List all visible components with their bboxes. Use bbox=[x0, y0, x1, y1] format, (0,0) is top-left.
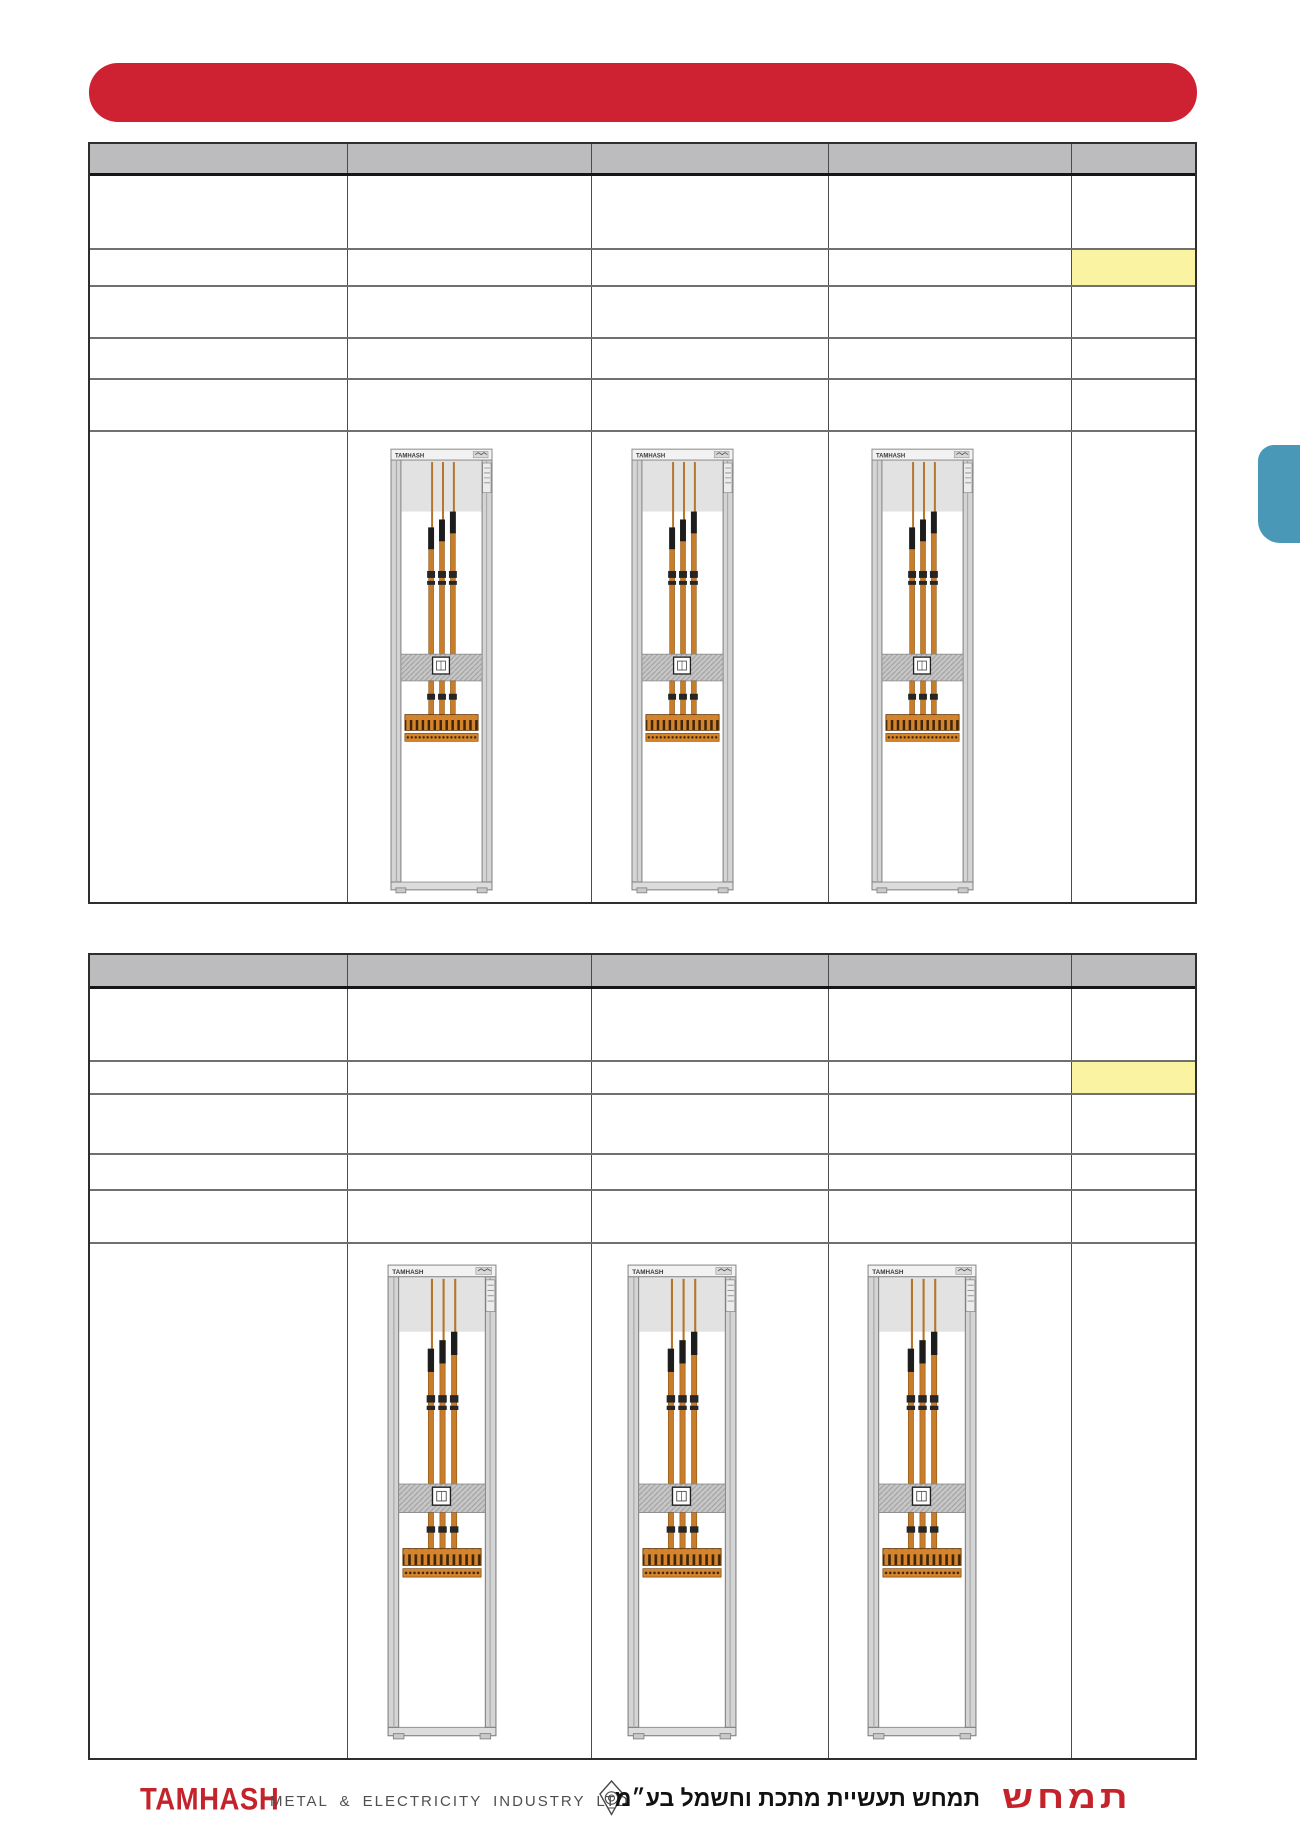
table-row bbox=[90, 176, 1195, 250]
table-cell bbox=[90, 1244, 348, 1758]
table-cell bbox=[1072, 1191, 1195, 1242]
table-cell bbox=[1072, 380, 1195, 430]
page-edge-tab bbox=[1258, 445, 1300, 543]
cabinet-image-cell bbox=[829, 1244, 1072, 1758]
table-cell bbox=[1072, 1155, 1195, 1189]
table-cell bbox=[90, 1062, 348, 1093]
table-cell bbox=[592, 1062, 829, 1093]
table-row bbox=[90, 287, 1195, 339]
table-cell bbox=[90, 989, 348, 1060]
table-cell bbox=[592, 287, 829, 337]
table-cell bbox=[348, 380, 592, 430]
table-cell bbox=[592, 989, 829, 1060]
table-cell bbox=[348, 989, 592, 1060]
table-cell bbox=[1072, 176, 1195, 248]
header-cell bbox=[829, 955, 1072, 986]
cabinet-image-cell bbox=[348, 432, 592, 902]
header-cell bbox=[1072, 955, 1195, 986]
table-cell bbox=[829, 1095, 1072, 1153]
table-cell bbox=[1072, 1244, 1195, 1758]
table-cell bbox=[348, 250, 592, 285]
highlighted-cell bbox=[1072, 1062, 1195, 1093]
table-header-row bbox=[90, 144, 1195, 176]
table-cell bbox=[829, 287, 1072, 337]
table-cell bbox=[829, 1155, 1072, 1189]
table-row bbox=[90, 1062, 1195, 1095]
table-row bbox=[90, 1095, 1195, 1155]
table-cell bbox=[1072, 339, 1195, 378]
table-cell bbox=[592, 1095, 829, 1153]
title-banner bbox=[89, 63, 1197, 122]
catalog-page: TAMHASH METAL & ELECTRICITY INDUSTRY LTD… bbox=[0, 0, 1300, 1839]
cabinet-drawing bbox=[631, 448, 734, 894]
header-cell bbox=[592, 955, 829, 986]
header-cell bbox=[348, 955, 592, 986]
cabinet-image-cell bbox=[592, 1244, 829, 1758]
table-cell bbox=[90, 1095, 348, 1153]
table-cell bbox=[90, 1155, 348, 1189]
highlighted-cell bbox=[1072, 250, 1195, 285]
cabinet-image-row bbox=[90, 432, 1195, 902]
table-cell bbox=[829, 989, 1072, 1060]
header-cell bbox=[1072, 144, 1195, 173]
cabinet-image-cell bbox=[829, 432, 1072, 902]
table-cell bbox=[1072, 287, 1195, 337]
table-cell bbox=[348, 1062, 592, 1093]
table-cell bbox=[348, 176, 592, 248]
header-cell bbox=[348, 144, 592, 173]
table-row bbox=[90, 989, 1195, 1062]
table-cell bbox=[592, 380, 829, 430]
table-row bbox=[90, 1191, 1195, 1244]
product-table-lower bbox=[88, 953, 1197, 1760]
table-cell bbox=[829, 380, 1072, 430]
cabinet-image-row bbox=[90, 1244, 1195, 1758]
table-row bbox=[90, 339, 1195, 380]
table-cell bbox=[348, 339, 592, 378]
table-cell bbox=[90, 287, 348, 337]
table-cell bbox=[1072, 989, 1195, 1060]
table-cell bbox=[592, 1155, 829, 1189]
table-cell bbox=[90, 380, 348, 430]
header-cell bbox=[90, 955, 348, 986]
table-cell bbox=[348, 287, 592, 337]
cabinet-drawing bbox=[387, 1264, 497, 1740]
company-logo-he: תמחש bbox=[1002, 1780, 1131, 1816]
table-cell bbox=[829, 176, 1072, 248]
header-cell bbox=[829, 144, 1072, 173]
header-cell bbox=[90, 144, 348, 173]
table-cell bbox=[592, 339, 829, 378]
table-cell bbox=[90, 432, 348, 902]
table-cell bbox=[829, 339, 1072, 378]
table-cell bbox=[348, 1191, 592, 1242]
table-cell bbox=[1072, 1095, 1195, 1153]
cabinet-drawing bbox=[627, 1264, 737, 1740]
company-logo-en: TAMHASH bbox=[140, 1781, 279, 1818]
table-row bbox=[90, 250, 1195, 287]
cabinet-image-cell bbox=[592, 432, 829, 902]
table-cell bbox=[348, 1155, 592, 1189]
table-cell bbox=[592, 1191, 829, 1242]
cabinet-drawing bbox=[867, 1264, 977, 1740]
table-cell bbox=[1072, 432, 1195, 902]
table-row bbox=[90, 380, 1195, 432]
cabinet-drawing bbox=[390, 448, 493, 894]
page-footer: TAMHASH METAL & ELECTRICITY INDUSTRY LTD… bbox=[140, 1780, 1140, 1822]
company-tagline-he: תמחש תעשיית מתכת וחשמל בע״מ bbox=[645, 1785, 980, 1812]
table-cell bbox=[592, 176, 829, 248]
table-cell bbox=[829, 1191, 1072, 1242]
table-cell bbox=[90, 339, 348, 378]
table-cell bbox=[348, 1095, 592, 1153]
table-cell bbox=[90, 250, 348, 285]
company-tagline-en: METAL & ELECTRICITY INDUSTRY LTD bbox=[270, 1793, 630, 1810]
table-row bbox=[90, 1155, 1195, 1191]
cabinet-image-cell bbox=[348, 1244, 592, 1758]
table-cell bbox=[829, 1062, 1072, 1093]
table-cell bbox=[592, 250, 829, 285]
table-header-row bbox=[90, 955, 1195, 989]
table-cell bbox=[829, 250, 1072, 285]
cabinet-drawing bbox=[871, 448, 974, 894]
header-cell bbox=[592, 144, 829, 173]
table-cell bbox=[90, 176, 348, 248]
table-cell bbox=[90, 1191, 348, 1242]
product-table-upper bbox=[88, 142, 1197, 904]
